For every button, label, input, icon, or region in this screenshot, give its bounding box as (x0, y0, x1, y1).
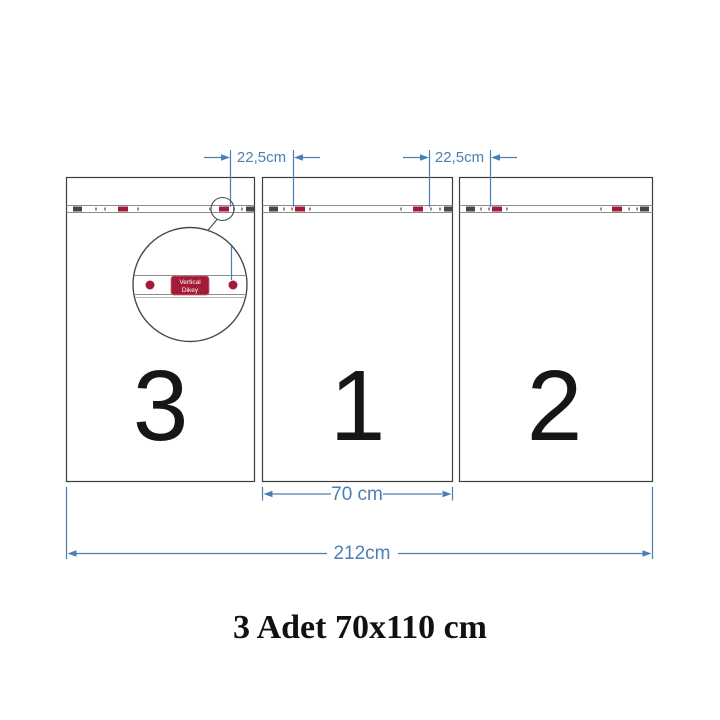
rail-hole (439, 208, 441, 211)
hanger-slot-marker (492, 207, 502, 212)
rail-hole (506, 208, 508, 211)
rail-hole (628, 208, 630, 211)
panel-1: 1 (263, 178, 454, 482)
rail-hole (104, 208, 106, 211)
arrowhead-left-icon (264, 491, 273, 497)
rail-hole (241, 208, 243, 211)
rail-end-clip (73, 207, 82, 212)
hanger-hole-dot (146, 281, 155, 290)
rail-hole (600, 208, 602, 211)
arrowhead-right-icon (443, 491, 452, 497)
badge-label-line1: Vertical (179, 279, 201, 286)
dimension-value: 212cm (333, 543, 390, 564)
rail-end-clip (246, 207, 254, 212)
arrowhead-right-icon (420, 154, 429, 160)
rail-hole (309, 208, 311, 211)
rail-hole (283, 208, 285, 211)
dimension-panel-width: 70 cm (263, 484, 453, 505)
dimension-value: 22,5cm (435, 149, 484, 166)
panel-3-number: 3 (133, 350, 189, 462)
rail-hole (488, 208, 490, 211)
panel-2: 2 (460, 178, 653, 482)
badge-label-line2: Dikey (182, 287, 199, 294)
rail-hole (480, 208, 482, 211)
rail-end-clip (269, 207, 278, 212)
arrowhead-left-icon (294, 154, 303, 160)
dimension-value: 22,5cm (237, 149, 286, 166)
hanger-slot-marker (219, 207, 229, 212)
arrowhead-left-icon (491, 154, 500, 160)
product-caption: 3 Adet 70x110 cm (233, 609, 487, 646)
rail-hole (95, 208, 97, 211)
arrowhead-left-icon (68, 550, 77, 556)
arrowhead-right-icon (221, 154, 230, 160)
panel-layout-diagram: 3 1 2 22,5cm (0, 0, 720, 720)
rail-hole (636, 208, 638, 211)
hanger-slot-marker (118, 207, 128, 212)
hanger-slot-marker (413, 207, 423, 212)
hanger-hole-dot (229, 281, 238, 290)
rail-hole (430, 208, 432, 211)
dimension-value: 70 cm (331, 484, 383, 505)
rail-end-clip (466, 207, 475, 212)
panel-2-number: 2 (527, 350, 583, 462)
rail-end-clip (640, 207, 649, 212)
hanger-slot-marker (612, 207, 622, 212)
rail-hole (137, 208, 139, 211)
rail-hole (291, 208, 293, 211)
panel-1-number: 1 (330, 350, 386, 462)
rail-end-clip (444, 207, 453, 212)
rail-hole (400, 208, 402, 211)
hanger-slot-marker (295, 207, 305, 212)
arrowhead-right-icon (643, 550, 652, 556)
